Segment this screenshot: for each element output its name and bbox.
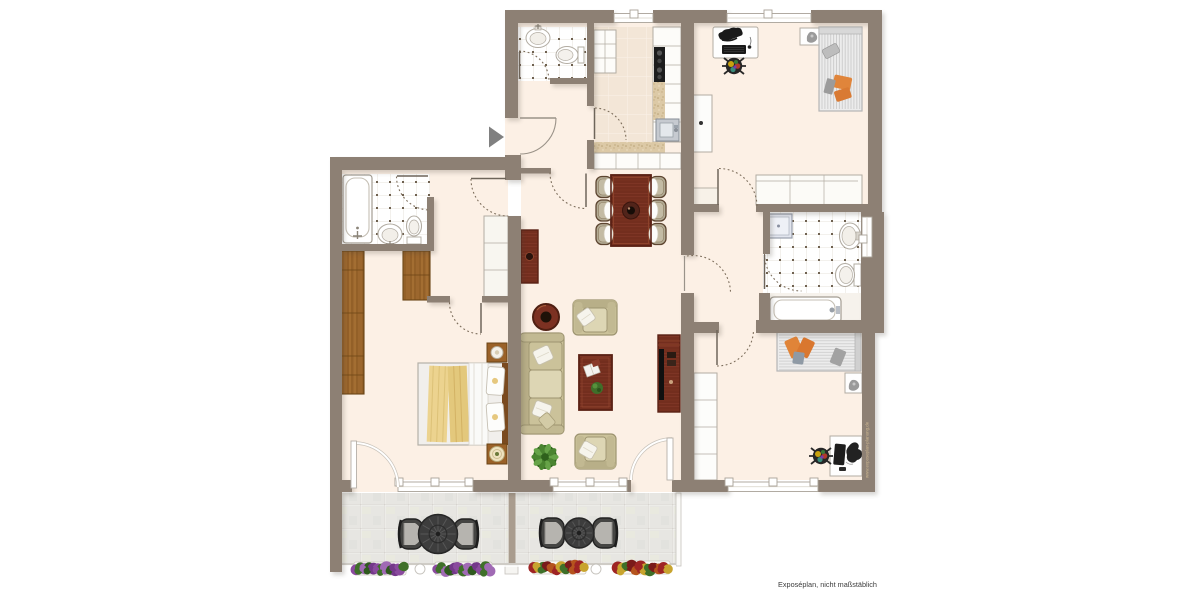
svg-text:Exposéplan, nicht maßstäblich: Exposéplan, nicht maßstäblich bbox=[778, 580, 877, 589]
svg-text:www.exposeplan-planung.de: www.exposeplan-planung.de bbox=[865, 421, 870, 478]
